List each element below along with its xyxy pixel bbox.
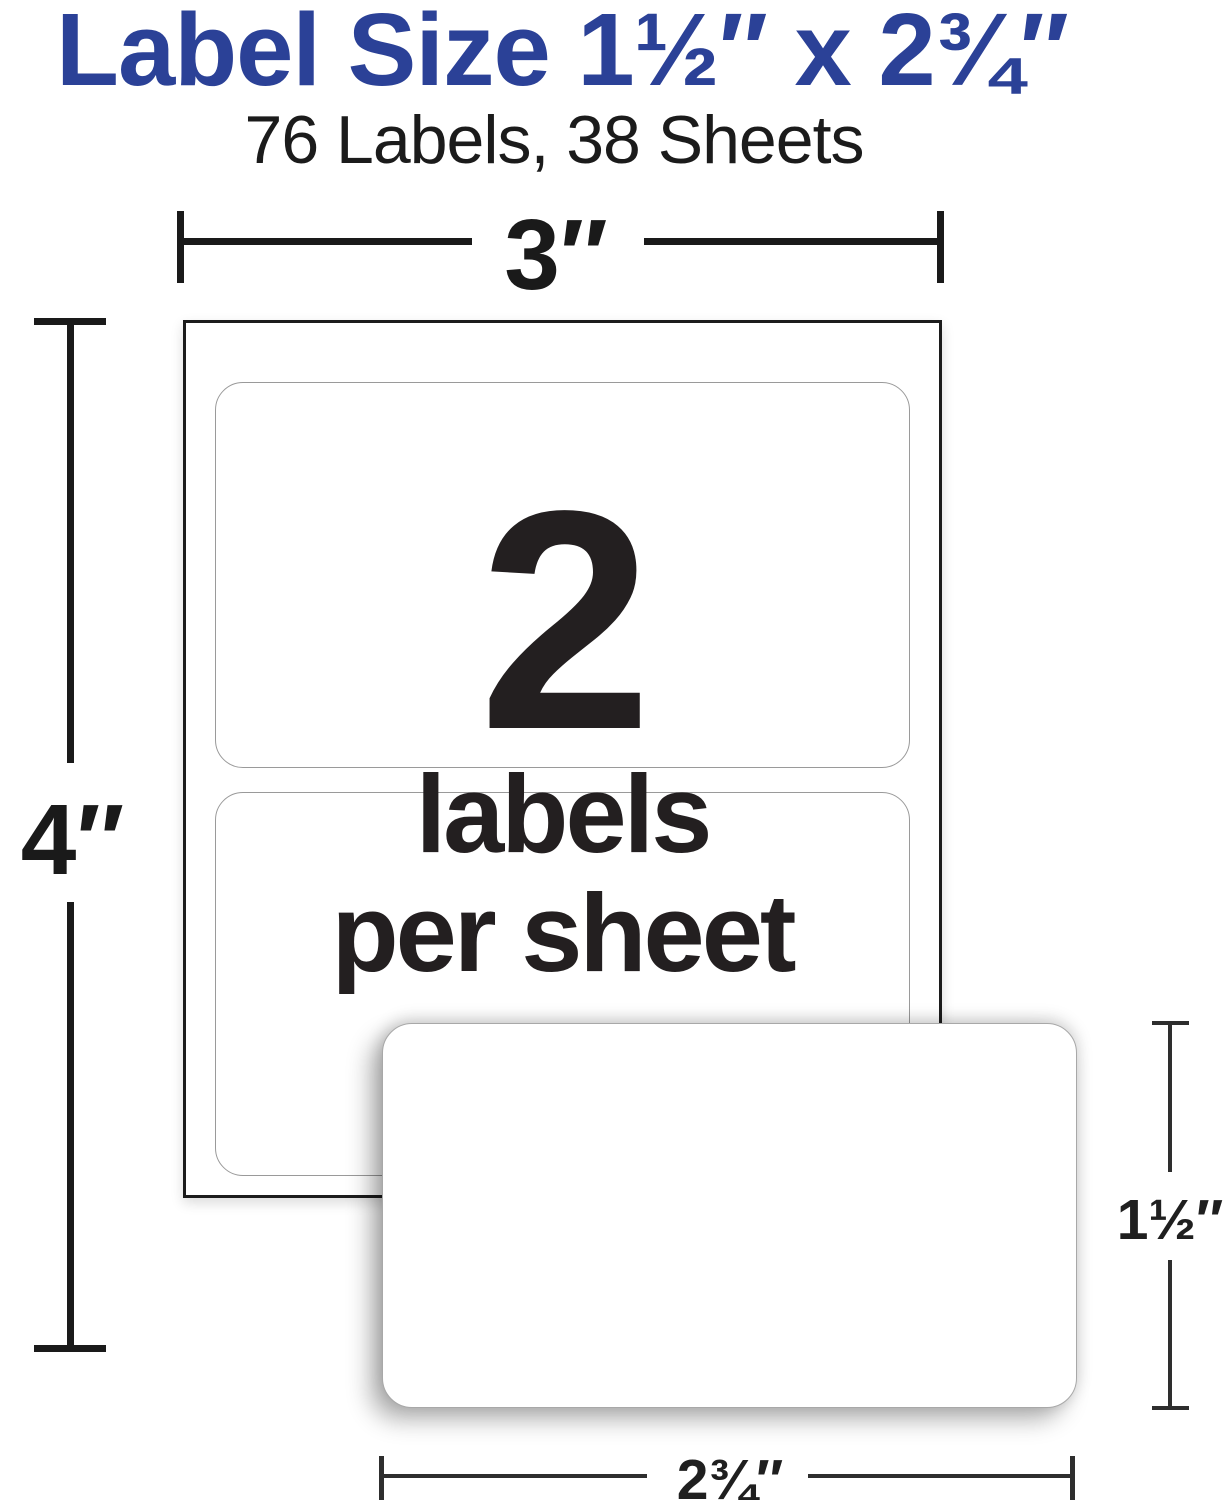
dim-3in-line-left <box>180 238 472 245</box>
dim-3in-label: 3″ <box>456 205 656 305</box>
labels-per-sheet-caption-line1: labels <box>186 760 939 870</box>
dim-1-5in-line-top <box>1168 1023 1172 1172</box>
dim-2-75in-line-left <box>381 1474 647 1478</box>
labels-per-sheet-count: 2 <box>186 465 939 777</box>
dim-1-5in-line-bottom <box>1168 1260 1172 1408</box>
dim-3in-line-right <box>644 238 941 245</box>
dim-1-5in-label: 1½″ <box>1085 1192 1223 1249</box>
page-title: Label Size 1½″ x 2¾″ <box>0 0 1124 101</box>
dim-2-75in-tick-right <box>1070 1456 1075 1500</box>
subtitle-count: 76 Labels, 38 Sheets <box>0 104 1108 176</box>
dim-2-75in-label: 2¾″ <box>630 1452 830 1500</box>
single-label <box>382 1023 1077 1408</box>
dim-2-75in-tick-left <box>379 1456 384 1500</box>
dim-4in-line-bottom <box>67 902 74 1348</box>
label-size-product-diagram: Label Size 1½″ x 2¾″ 76 Labels, 38 Sheet… <box>0 0 1223 1500</box>
labels-per-sheet-caption-line2: per sheet <box>186 879 939 989</box>
dim-4in-label: 4″ <box>0 790 145 890</box>
dim-2-75in-line-right <box>808 1474 1074 1478</box>
dim-3in-tick-right <box>937 211 944 283</box>
dim-3in-tick-left <box>177 211 184 283</box>
dim-4in-line-top <box>67 321 74 763</box>
